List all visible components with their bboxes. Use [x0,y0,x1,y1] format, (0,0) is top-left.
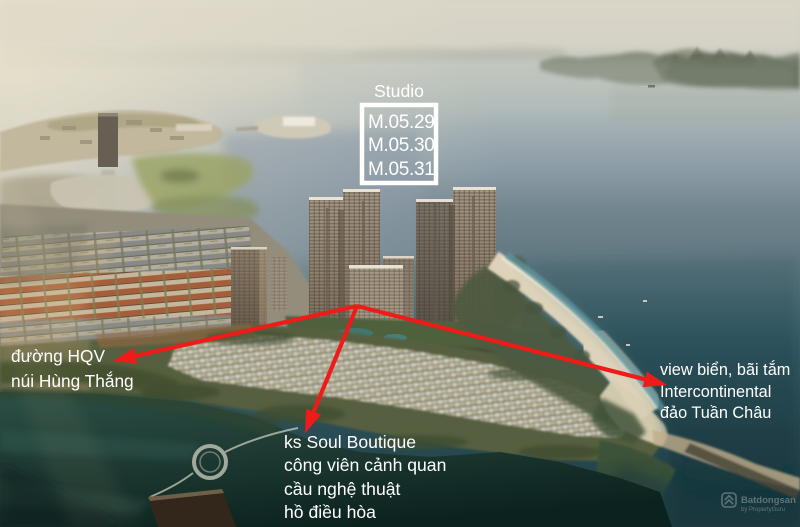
svg-text:by PropertyGuru: by PropertyGuru [741,507,785,513]
svg-text:Batdongsan: Batdongsan [741,495,796,506]
